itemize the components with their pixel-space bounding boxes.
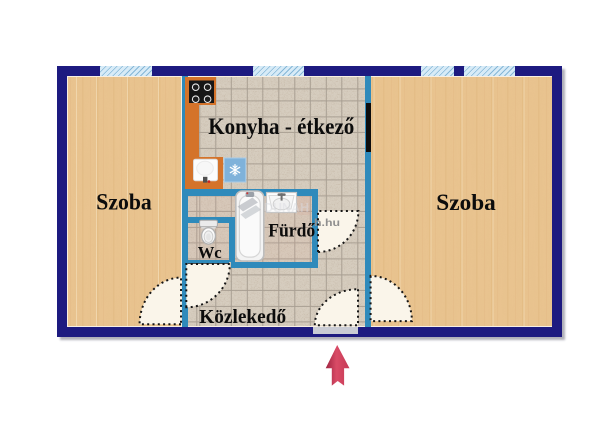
svg-text:Konyha - étkező: Konyha - étkező xyxy=(208,114,354,139)
svg-text:DUNAH: DUNAH xyxy=(264,201,309,215)
svg-text:Wc: Wc xyxy=(198,243,222,262)
svg-text:Szoba: Szoba xyxy=(436,190,496,215)
svg-text:h.hu: h.hu xyxy=(314,218,340,229)
svg-text:Fürdő: Fürdő xyxy=(268,222,315,242)
svg-text:Közlekedő: Közlekedő xyxy=(199,306,286,328)
svg-text:Szoba: Szoba xyxy=(96,190,152,215)
